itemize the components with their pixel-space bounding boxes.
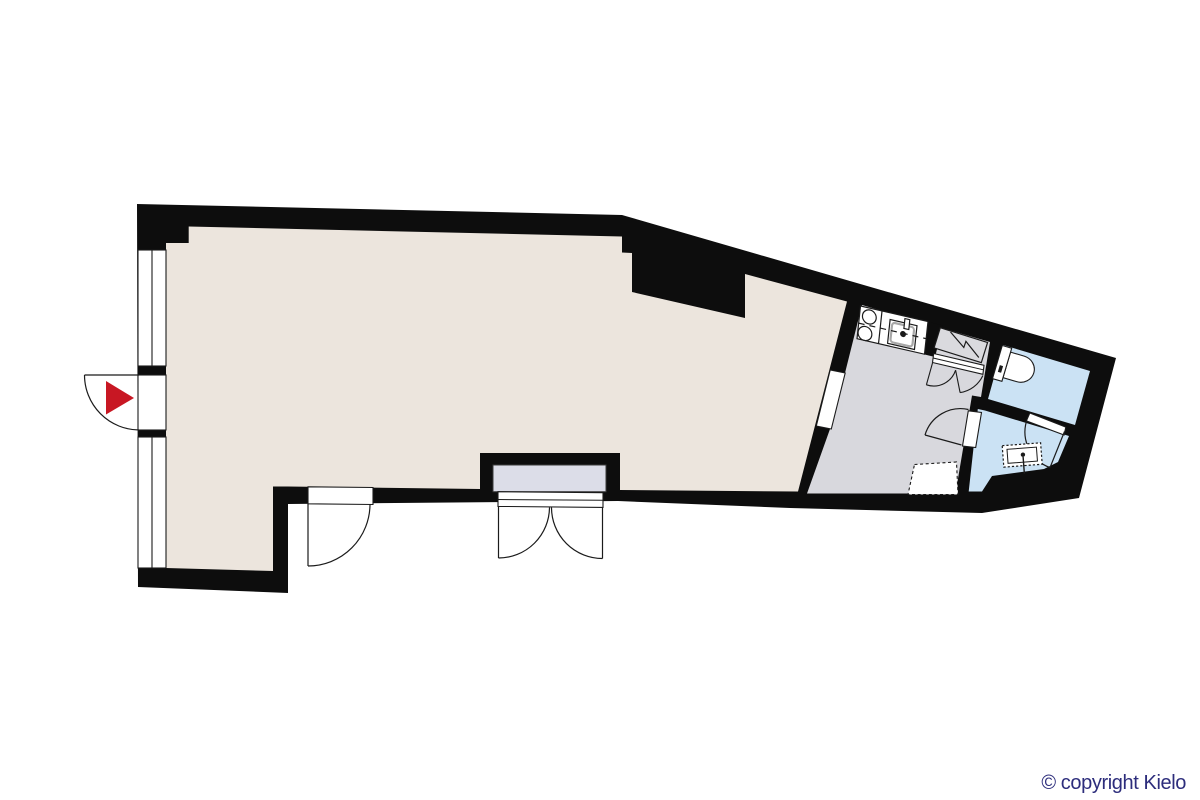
- svg-text:© copyright Kielo: © copyright Kielo: [1041, 772, 1186, 794]
